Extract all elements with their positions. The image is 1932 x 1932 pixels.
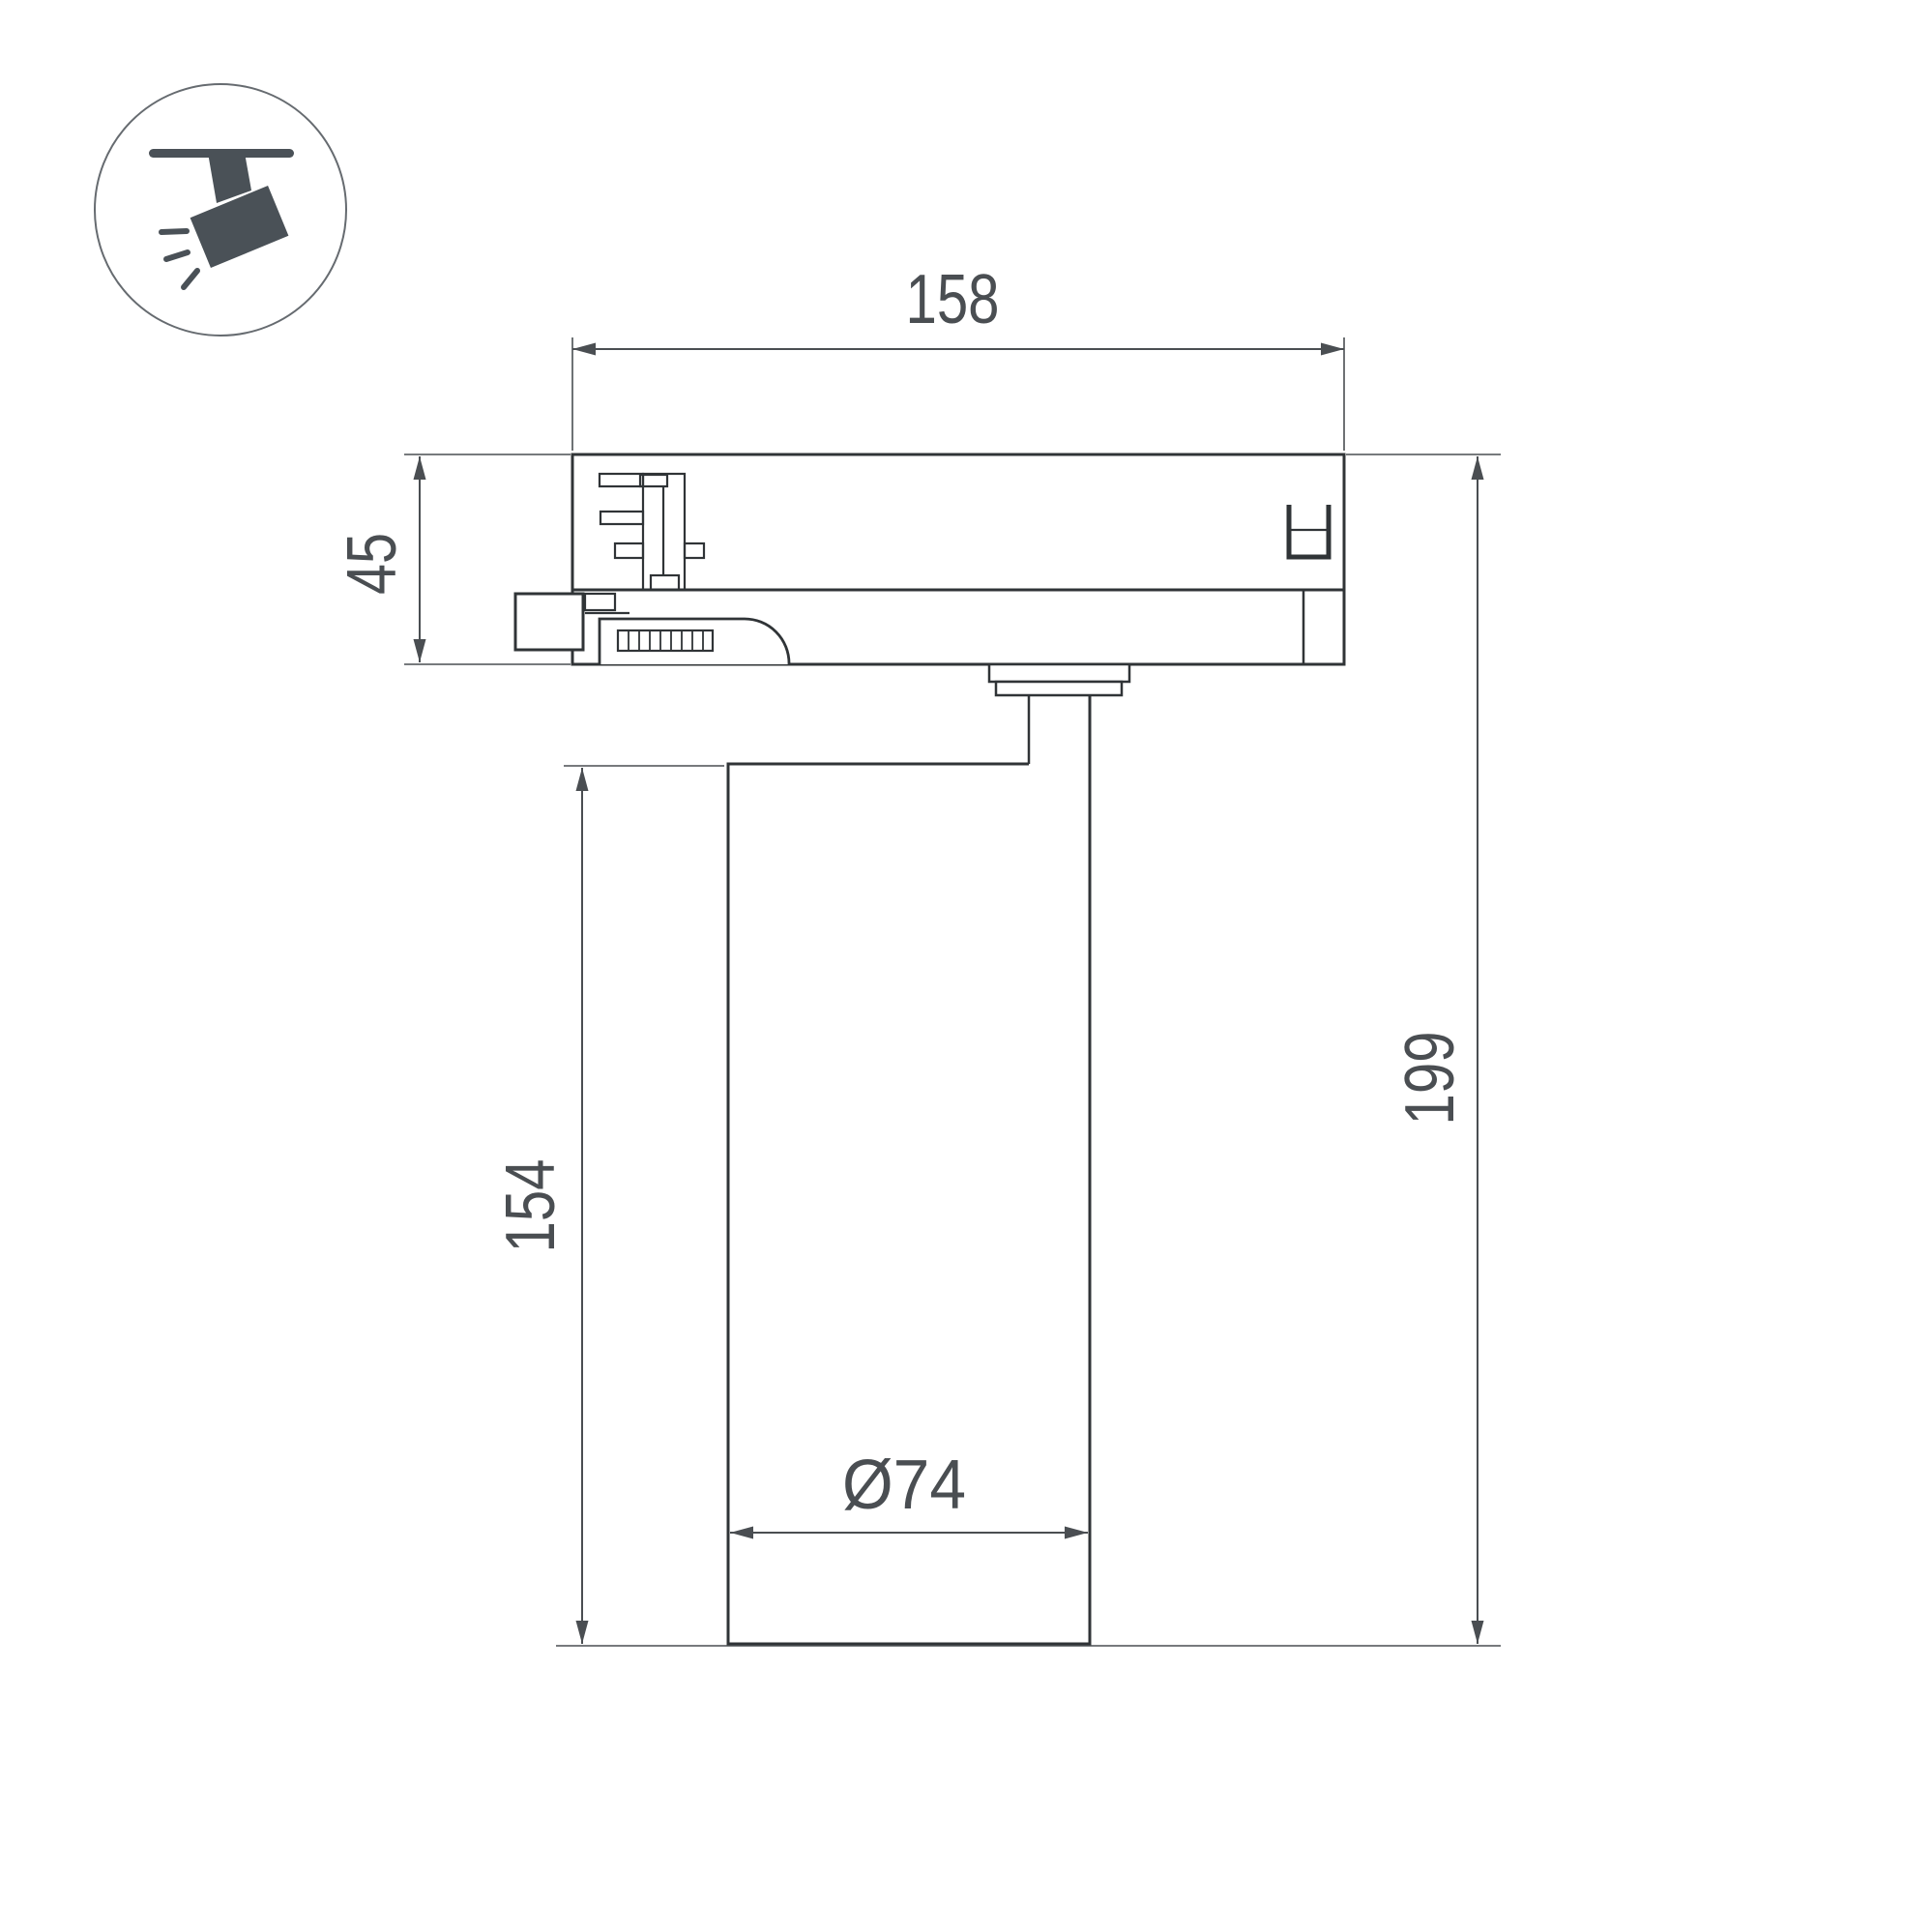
contact-prong-lower <box>615 543 643 558</box>
contact-prong-top <box>600 474 643 486</box>
dimension-label-track-width: 158 <box>906 261 1000 338</box>
contact-assembly <box>600 474 704 590</box>
track-spotlight-icon <box>95 84 346 336</box>
dimension-label-body-height: 154 <box>492 1159 570 1253</box>
latch-hook <box>585 594 615 610</box>
dimension-labels: 158 45 154 199 Ø74 <box>334 261 1469 1524</box>
dimension-label-body-diameter: Ø74 <box>842 1447 966 1524</box>
latch-block <box>515 594 583 650</box>
dimension-label-adapter-height: 45 <box>334 533 411 595</box>
dimensions: 158 45 154 199 Ø74 <box>334 261 1501 1646</box>
contact-prong-right <box>685 543 704 558</box>
drawing-stage: 158 45 154 199 Ø74 <box>0 0 1932 1932</box>
icon-light-ray <box>161 231 187 232</box>
contact-prong-middle <box>600 512 643 524</box>
track-adapter <box>515 454 1344 664</box>
swivel-joint <box>989 664 1129 764</box>
dimension-drawing: 158 45 154 199 Ø74 <box>0 0 1932 1932</box>
contact-foot <box>651 575 679 590</box>
contact-cap <box>640 475 667 486</box>
joint-step-narrow <box>996 682 1122 695</box>
joint-step-wide <box>989 664 1129 682</box>
right-clip <box>1289 505 1329 557</box>
dimension-label-total-height: 199 <box>1391 1032 1469 1126</box>
